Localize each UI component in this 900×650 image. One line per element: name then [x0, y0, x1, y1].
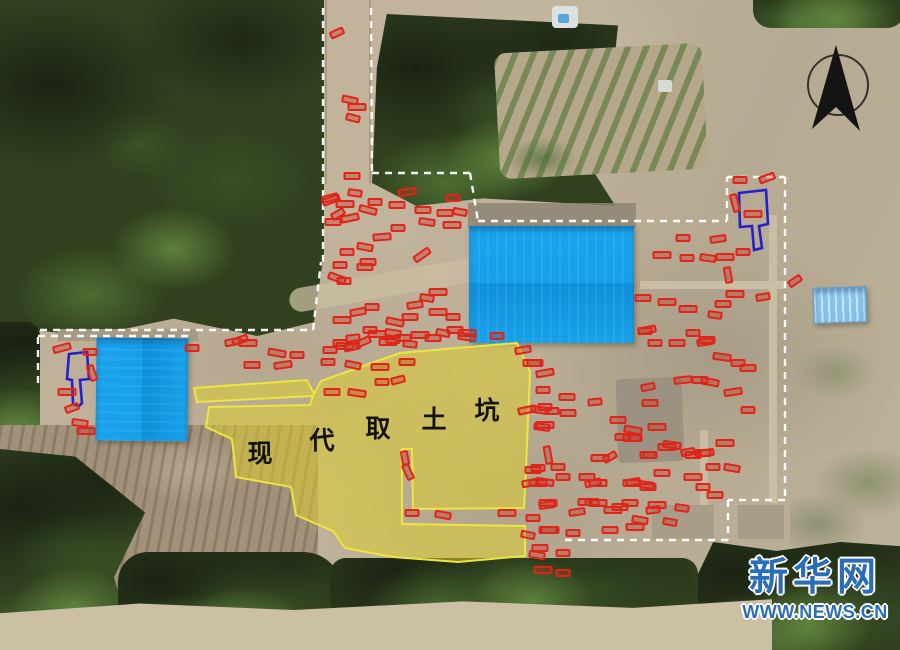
tomb-marker [556, 473, 571, 481]
tomb-marker [723, 387, 743, 398]
tomb-marker [556, 549, 571, 557]
tomb-marker [347, 388, 367, 399]
tomb-marker [535, 367, 555, 378]
tomb-marker [372, 232, 392, 242]
tomb-marker [568, 507, 586, 517]
tomb-marker [402, 339, 418, 349]
tomb-marker [333, 261, 348, 269]
tomb-marker [536, 421, 555, 429]
tomb-marker [602, 450, 619, 464]
tomb-marker [344, 359, 362, 370]
tomb-marker [787, 273, 804, 288]
tomb-marker [679, 305, 698, 313]
blue-tarp [558, 14, 569, 23]
tomb-marker [405, 509, 420, 517]
scrub-field-east [790, 290, 900, 565]
soil-pit-label-char: 土 [421, 400, 446, 436]
tomb-marker [625, 477, 641, 487]
work-shed-large [469, 226, 634, 343]
tomb-marker [526, 514, 541, 522]
tomb-marker [384, 328, 402, 338]
tomb-marker [623, 479, 642, 487]
tomb-marker [527, 359, 544, 367]
tomb-marker [239, 339, 258, 347]
excavation-pit-dark [652, 505, 714, 539]
tomb-marker [402, 313, 419, 321]
tomb-marker [412, 246, 432, 263]
tomb-marker [585, 498, 600, 506]
tomb-marker [517, 404, 537, 416]
excavation-boundary-dashed-line [371, 8, 372, 173]
tomb-marker [535, 477, 555, 488]
tomb-marker [357, 263, 374, 271]
tomb-marker [336, 342, 355, 350]
tomb-marker [589, 499, 608, 507]
tomb-marker [401, 463, 415, 482]
ramp-tomb-outline [67, 352, 89, 406]
tomb-marker [654, 469, 671, 477]
tomb-marker [685, 451, 702, 459]
tomb-marker [323, 346, 338, 354]
tomb-marker [709, 234, 727, 244]
tomb-marker [523, 359, 542, 367]
tomb-marker [443, 221, 462, 229]
tomb-marker [58, 388, 77, 396]
tomb-marker [435, 328, 451, 338]
tomb-marker [622, 499, 639, 507]
tomb-marker [539, 499, 558, 507]
tomb-marker [360, 258, 377, 266]
tomb-marker [231, 334, 250, 347]
tomb-marker [560, 409, 577, 417]
tomb-marker [368, 330, 387, 338]
tomb-marker [604, 506, 623, 514]
tomb-marker [716, 439, 735, 447]
tomb-marker [536, 386, 551, 394]
tomb-marker [723, 463, 741, 474]
tomb-marker [715, 300, 732, 308]
tomb-marker [726, 290, 745, 298]
tomb-marker [532, 544, 549, 552]
tomb-marker [700, 376, 720, 387]
tomb-marker [452, 207, 468, 217]
tomb-marker [64, 402, 81, 415]
tomb-marker [658, 298, 677, 306]
north-arrow-icon [812, 45, 860, 131]
aerial-site-photo: 现代取土坑 新华网 WWW.NEWS.CN [0, 0, 900, 650]
tomb-marker [386, 336, 401, 344]
tomb-marker [551, 463, 566, 471]
tomb-marker [559, 393, 576, 401]
tomb-marker [648, 339, 663, 347]
tomb-marker [637, 324, 657, 335]
tomb-marker [525, 466, 542, 474]
tomb-marker [699, 253, 717, 263]
tomb-marker [406, 300, 424, 310]
tomb-marker [541, 526, 560, 534]
tomb-marker [680, 254, 695, 262]
tomb-marker [638, 327, 653, 335]
work-shed-west [95, 338, 188, 442]
tomb-marker [400, 450, 410, 466]
tomb-marker [345, 333, 361, 343]
tomb-marker [363, 326, 378, 334]
tomb-marker [390, 374, 407, 386]
green-strip-northeast [753, 0, 900, 28]
tomb-marker [244, 361, 261, 369]
tomb-marker [411, 331, 430, 339]
tomb-marker [356, 242, 374, 253]
tomb-marker [447, 326, 464, 334]
tomb-marker [336, 200, 355, 208]
tomb-marker [395, 334, 412, 342]
tomb-marker [729, 193, 742, 213]
tomb-marker [354, 335, 373, 349]
tomb-marker [591, 454, 610, 462]
tomb-marker [669, 339, 686, 347]
tomb-marker [290, 351, 305, 359]
tomb-marker [498, 509, 517, 517]
top-trench-floor [325, 0, 371, 184]
north-arrow-circle [808, 55, 868, 115]
tomb-marker [347, 188, 363, 198]
tomb-marker [429, 308, 448, 316]
dark-soil-patch [616, 377, 685, 463]
forest-area-northwest [0, 0, 324, 336]
tomb-marker [530, 405, 550, 416]
tomb-marker [653, 251, 672, 259]
tomb-marker [349, 307, 367, 318]
tomb-marker [731, 359, 746, 367]
tomb-marker [333, 316, 352, 324]
tomb-marker [385, 316, 405, 328]
tomb-marker [368, 198, 383, 206]
tomb-marker [429, 288, 448, 296]
tomb-marker [538, 403, 553, 411]
tomb-marker [224, 337, 242, 348]
tomb-marker [371, 363, 390, 371]
tomb-marker [566, 529, 581, 537]
tomb-marker [707, 491, 724, 499]
tomb-marker [758, 171, 777, 184]
tomb-marker [391, 224, 406, 232]
tomb-marker [699, 336, 716, 344]
tomb-marker [267, 347, 287, 358]
tomb-marker [330, 207, 347, 221]
tomb-marker [707, 310, 723, 320]
soil-strip-above-shed [468, 203, 636, 228]
tomb-marker [733, 176, 748, 184]
tomb-marker [529, 479, 548, 487]
tomb-marker [612, 503, 629, 511]
tomb-marker [520, 530, 536, 541]
tomb-marker [579, 473, 596, 481]
tomb-marker [602, 526, 619, 534]
tomb-marker [716, 253, 735, 261]
tomb-marker [635, 294, 652, 302]
small-white-hut [658, 80, 672, 92]
tomb-marker [375, 378, 390, 386]
tomb-marker [545, 407, 560, 415]
tomb-marker [692, 376, 709, 384]
tomb-marker [340, 212, 360, 224]
tomb-marker [521, 478, 539, 489]
tomb-marker [333, 339, 348, 347]
tomb-marker [415, 206, 432, 214]
tomb-marker [578, 498, 593, 506]
tomb-marker [399, 358, 416, 366]
tomb-marker [418, 217, 436, 227]
tomb-marker [340, 248, 355, 256]
tomb-marker [640, 483, 657, 491]
tomb-marker [531, 464, 546, 472]
excavation-baulk-h [640, 281, 786, 289]
tomb-marker [696, 337, 714, 347]
tomb-marker [434, 510, 452, 521]
ramp-tomb-outline [739, 190, 768, 250]
tomb-marker [587, 397, 603, 407]
tomb-marker [358, 204, 378, 217]
tomb-marker [325, 218, 342, 226]
tomb-marker [584, 477, 602, 488]
tomb-marker [446, 313, 461, 321]
tomb-marker [321, 358, 336, 366]
tomb-marker [389, 201, 406, 209]
tomb-marker [539, 526, 558, 534]
tomb-marker [419, 293, 435, 303]
soil-pit-label-char: 取 [365, 409, 390, 445]
tomb-marker [273, 360, 293, 371]
xinhuanet-brand-text: 新华网 [731, 558, 899, 599]
tomb-marker [533, 422, 551, 432]
tomb-marker [626, 523, 645, 531]
tomb-marker [514, 345, 532, 356]
tomb-marker [631, 515, 649, 526]
tomb-marker [686, 329, 701, 337]
tomb-marker [712, 352, 732, 363]
excavation-baulk-v [769, 215, 777, 503]
tomb-marker [379, 338, 398, 346]
tomb-marker [740, 364, 757, 372]
tomb-marker [343, 341, 361, 352]
tomb-marker [437, 209, 454, 217]
tomb-marker [324, 388, 341, 396]
tomb-marker [538, 500, 556, 510]
xinhuanet-watermark: 新华网 WWW.NEWS.CN [731, 558, 899, 622]
tomb-marker [741, 406, 756, 414]
tomb-marker [83, 348, 98, 356]
tomb-marker [744, 210, 763, 218]
tomb-marker [639, 480, 655, 490]
excavation-pit-dark2 [738, 505, 784, 539]
tomb-marker [676, 234, 691, 242]
tomb-marker [589, 479, 608, 487]
tomb-marker [542, 445, 553, 465]
vegetable-garden-terraces [494, 43, 708, 180]
xinhuanet-url-text: WWW.NEWS.CN [731, 603, 899, 622]
tomb-marker [52, 342, 72, 355]
tomb-marker [736, 248, 751, 256]
shed-small-east [812, 286, 867, 324]
tomb-marker [425, 334, 442, 342]
soil-pit-label-char: 坑 [474, 391, 499, 427]
tomb-marker [365, 303, 380, 311]
